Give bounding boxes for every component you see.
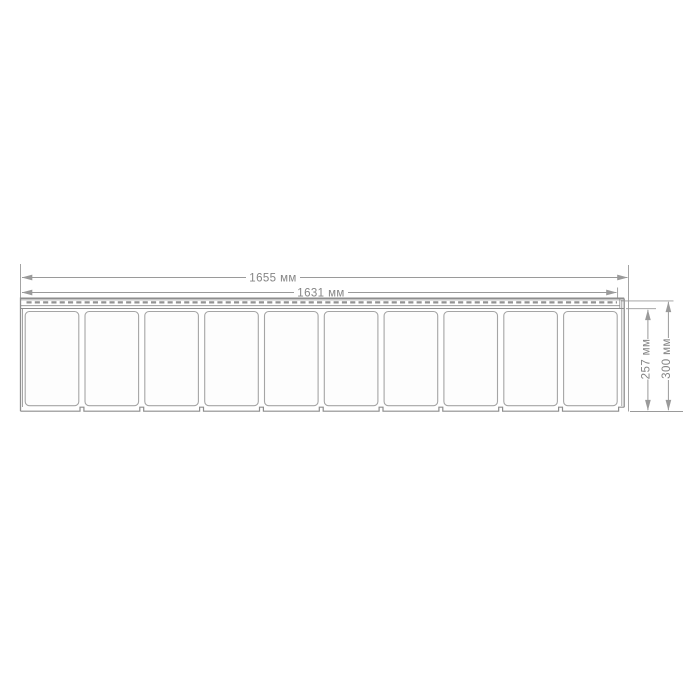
brick-section [444,312,498,406]
brick-section [85,312,139,406]
technical-drawing: 1655 мм 1631 мм 2 [0,0,700,700]
brick-section [145,312,199,406]
panel-bottom-contour [21,407,625,411]
exposed-height-label: 257 мм [641,339,653,380]
dimension-exposed-height: 257 мм [641,310,653,410]
dimension-overall-height: 300 мм [661,302,673,410]
brick-row [25,312,617,406]
brick-section [564,312,618,406]
brick-section [324,312,378,406]
overall-height-label: 300 мм [661,338,673,379]
siding-panel [21,298,625,412]
brick-section [265,312,319,406]
brick-section [25,312,79,406]
overall-width-label: 1655 мм [249,273,296,285]
brick-section [205,312,259,406]
brick-section [504,312,558,406]
brick-section [384,312,438,406]
